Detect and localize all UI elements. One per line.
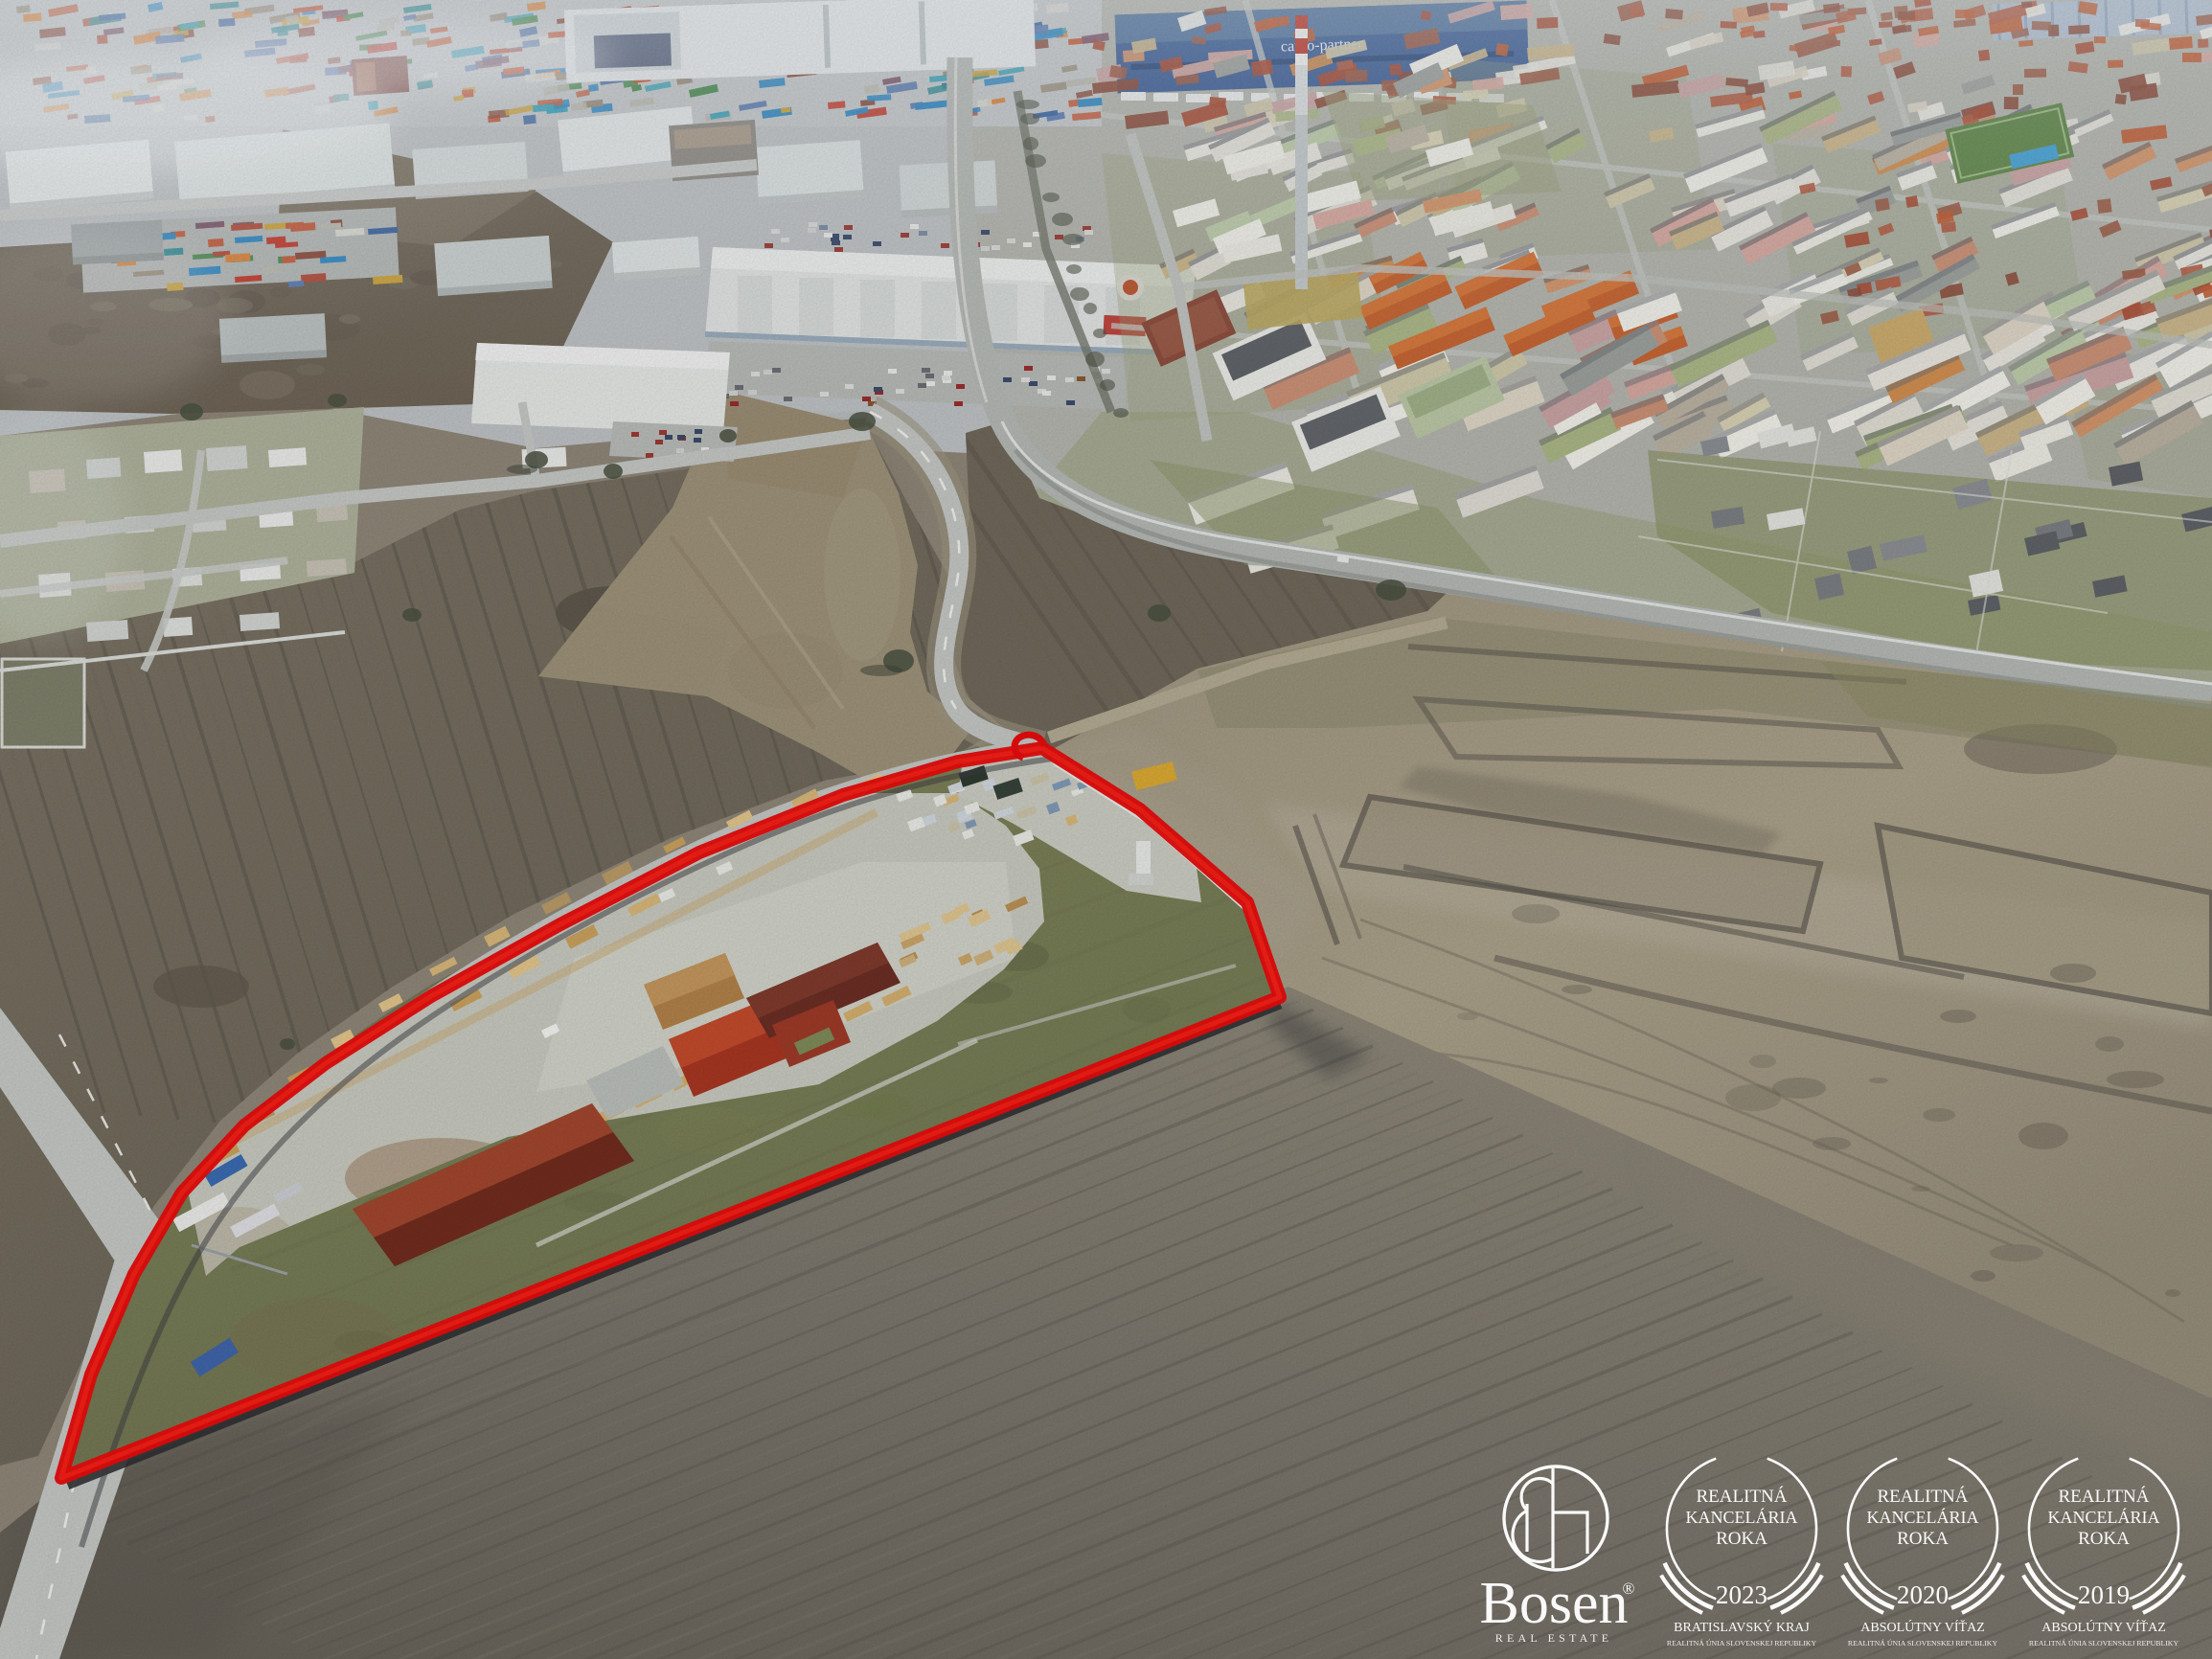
svg-text:ABSOLÚTNY VÍŤAZ: ABSOLÚTNY VÍŤAZ [1860,1619,1985,1635]
svg-text:REALITNÁ ÚNIA SLOVENSKEJ REPUB: REALITNÁ ÚNIA SLOVENSKEJ REPUBLIKY [1667,1638,1817,1648]
svg-text:REALITNÁ ÚNIA SLOVENSKEJ REPUB: REALITNÁ ÚNIA SLOVENSKEJ REPUBLIKY [2029,1638,2179,1648]
svg-text:REALITNÁ: REALITNÁ [1878,1486,1969,1507]
svg-text:KANCELÁRIA: KANCELÁRIA [2048,1507,2160,1527]
svg-text:REALITNÁ ÚNIA SLOVENSKEJ REPUB: REALITNÁ ÚNIA SLOVENSKEJ REPUBLIKY [1848,1638,1998,1648]
svg-text:REALITNÁ: REALITNÁ [1697,1486,1788,1507]
svg-text:KANCELÁRIA: KANCELÁRIA [1686,1507,1798,1527]
svg-text:2019: 2019 [2078,1580,2130,1609]
svg-text:ROKA: ROKA [2078,1529,2130,1549]
svg-text:BRATISLAVSKÝ KRAJ: BRATISLAVSKÝ KRAJ [1674,1619,1810,1635]
svg-text:REALITNÁ: REALITNÁ [2059,1486,2150,1507]
svg-text:Bosen: Bosen [1480,1571,1629,1636]
svg-text:KANCELÁRIA: KANCELÁRIA [1867,1507,1979,1527]
svg-text:REAL ESTATE: REAL ESTATE [1495,1631,1612,1645]
svg-text:ROKA: ROKA [1897,1529,1949,1549]
svg-text:ABSOLÚTNY VÍŤAZ: ABSOLÚTNY VÍŤAZ [2041,1619,2166,1635]
svg-text:2020: 2020 [1897,1580,1949,1609]
svg-text:2023: 2023 [1716,1580,1767,1609]
svg-text:ROKA: ROKA [1716,1529,1767,1549]
svg-text:®: ® [1623,1579,1635,1598]
